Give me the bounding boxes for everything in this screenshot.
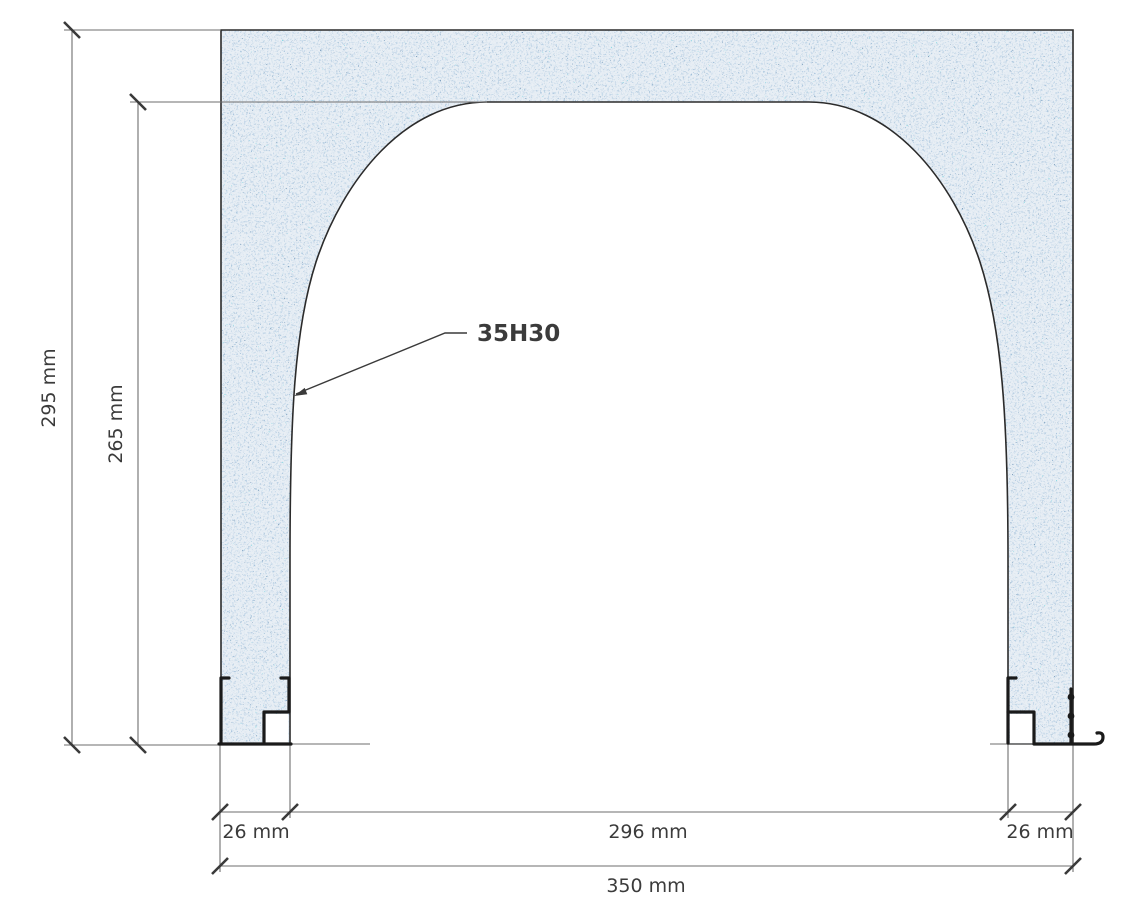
leader-arrowhead — [294, 388, 307, 396]
dim-label-opening-width: 296 mm — [608, 821, 687, 843]
dim-label-opening-height: 265 mm — [105, 384, 127, 463]
dim-label-left-jamb: 26 mm — [222, 821, 289, 843]
dim-label-overall-height: 295 mm — [38, 348, 60, 427]
clip-bump — [1068, 732, 1075, 739]
dim-label-overall-width: 350 mm — [606, 875, 685, 897]
dim-label-right-jamb: 26 mm — [1006, 821, 1073, 843]
technical-drawing-page: 295 mm 265 mm 26 mm 296 mm 26 mm 350 mm … — [0, 0, 1146, 919]
labels: 295 mm 265 mm 26 mm 296 mm 26 mm 350 mm … — [38, 321, 1074, 897]
leader-line — [296, 333, 467, 394]
leader-35h30 — [294, 333, 467, 396]
left-foot-notch — [265, 714, 288, 743]
cross-section-drawing: 295 mm 265 mm 26 mm 296 mm 26 mm 350 mm … — [0, 0, 1146, 919]
part-label: 35H30 — [477, 321, 560, 347]
clip-bump — [1068, 694, 1075, 701]
right-foot-notch — [1010, 714, 1033, 743]
concrete-texture — [200, 20, 1100, 760]
clip-bump — [1068, 713, 1075, 720]
track-profiles — [219, 678, 1103, 744]
